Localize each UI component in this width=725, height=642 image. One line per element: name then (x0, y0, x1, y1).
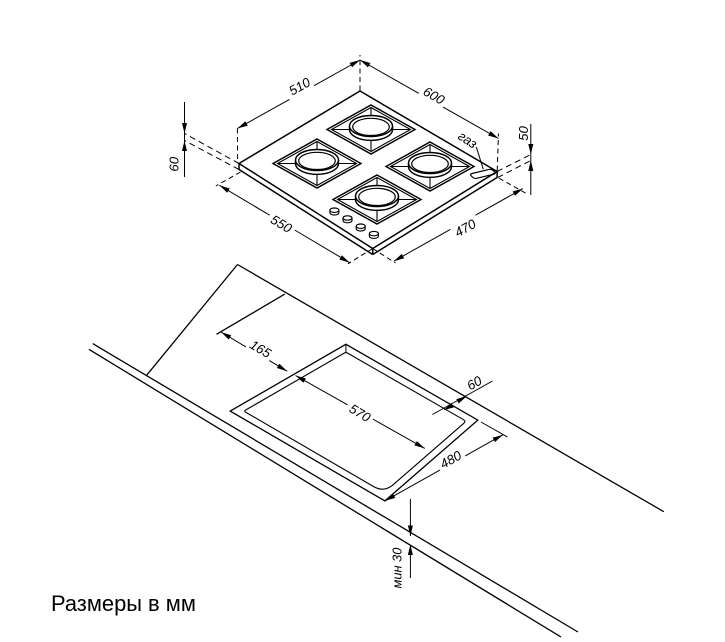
svg-text:мин 30: мин 30 (390, 547, 405, 589)
svg-text:550: 550 (268, 212, 295, 236)
svg-text:50: 50 (516, 126, 531, 141)
svg-text:470: 470 (452, 216, 479, 240)
svg-text:570: 570 (347, 401, 374, 425)
svg-text:60: 60 (464, 373, 485, 394)
svg-text:60: 60 (167, 156, 182, 171)
svg-text:600: 600 (421, 84, 448, 108)
svg-text:Размеры в мм: Размеры в мм (51, 591, 196, 616)
svg-text:165: 165 (247, 337, 274, 361)
svg-text:510: 510 (286, 74, 313, 98)
